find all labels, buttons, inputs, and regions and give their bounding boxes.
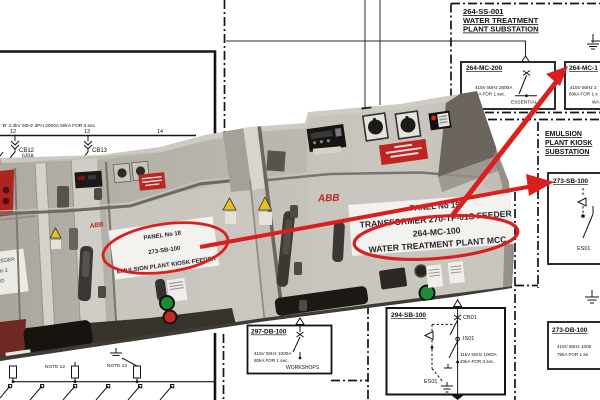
svg-text:WA: WA [592, 100, 600, 106]
svg-text:80kA FOR 1 s: 80kA FOR 1 s [569, 92, 598, 97]
svg-text:IS01: IS01 [463, 336, 474, 342]
svg-text:415V 50Hz 1000A: 415V 50Hz 1000A [254, 351, 292, 356]
svg-text:'B' 3.3kV 50Hz 3PH 2000A 50kA: 'B' 3.3kV 50Hz 3PH 2000A 50kA FOR 3 sec. [2, 123, 96, 129]
svg-text:273-SB-100: 273-SB-100 [553, 178, 588, 185]
svg-text:80kA FOR 1 sec.: 80kA FOR 1 sec. [254, 358, 289, 363]
svg-text:SUBSTATION: SUBSTATION [545, 149, 589, 156]
svg-text:NOTE 12: NOTE 12 [107, 363, 127, 369]
svg-text:273-DB-100: 273-DB-100 [552, 327, 588, 334]
svg-text:PLANT KIOSK: PLANT KIOSK [545, 140, 592, 147]
svg-text:415V 50Hz 2500A: 415V 50Hz 2500A [475, 85, 513, 90]
svg-text:ESSENTIAL: ESSENTIAL [511, 100, 538, 106]
svg-text:264-MC-200: 264-MC-200 [466, 65, 503, 72]
svg-text:13: 13 [84, 129, 90, 135]
svg-text:264-MC-1: 264-MC-1 [569, 65, 598, 72]
svg-text:294-SB-100: 294-SB-100 [391, 312, 426, 319]
svg-text:264-SS-001: 264-SS-001 [463, 7, 504, 16]
svg-text:12: 12 [10, 129, 16, 135]
svg-text:11kV 50Hz 1000A: 11kV 50Hz 1000A [460, 352, 498, 357]
svg-text:20kA FOR 3 sec.: 20kA FOR 3 sec. [460, 359, 495, 364]
svg-text:PLANT SUBSTATION: PLANT SUBSTATION [463, 25, 539, 34]
svg-text:WORKSHOPS: WORKSHOPS [286, 365, 320, 371]
svg-text:415V 50Hz 1000: 415V 50Hz 1000 [557, 344, 592, 349]
svg-text:CB13: CB13 [92, 148, 108, 154]
svg-text:ES01: ES01 [577, 246, 590, 252]
svg-text:14: 14 [157, 129, 163, 135]
svg-text:CB01: CB01 [463, 315, 477, 321]
svg-text:297-DB-100: 297-DB-100 [251, 329, 287, 336]
svg-text:415V 50Hz 2: 415V 50Hz 2 [570, 85, 597, 90]
svg-text:ES01: ES01 [424, 379, 437, 385]
svg-text:EMULSION: EMULSION [545, 131, 582, 138]
svg-text:75kA FOR 1 se: 75kA FOR 1 se [557, 352, 589, 357]
svg-text:NOTE 12: NOTE 12 [45, 364, 65, 370]
svg-text:ABB: ABB [317, 193, 340, 205]
